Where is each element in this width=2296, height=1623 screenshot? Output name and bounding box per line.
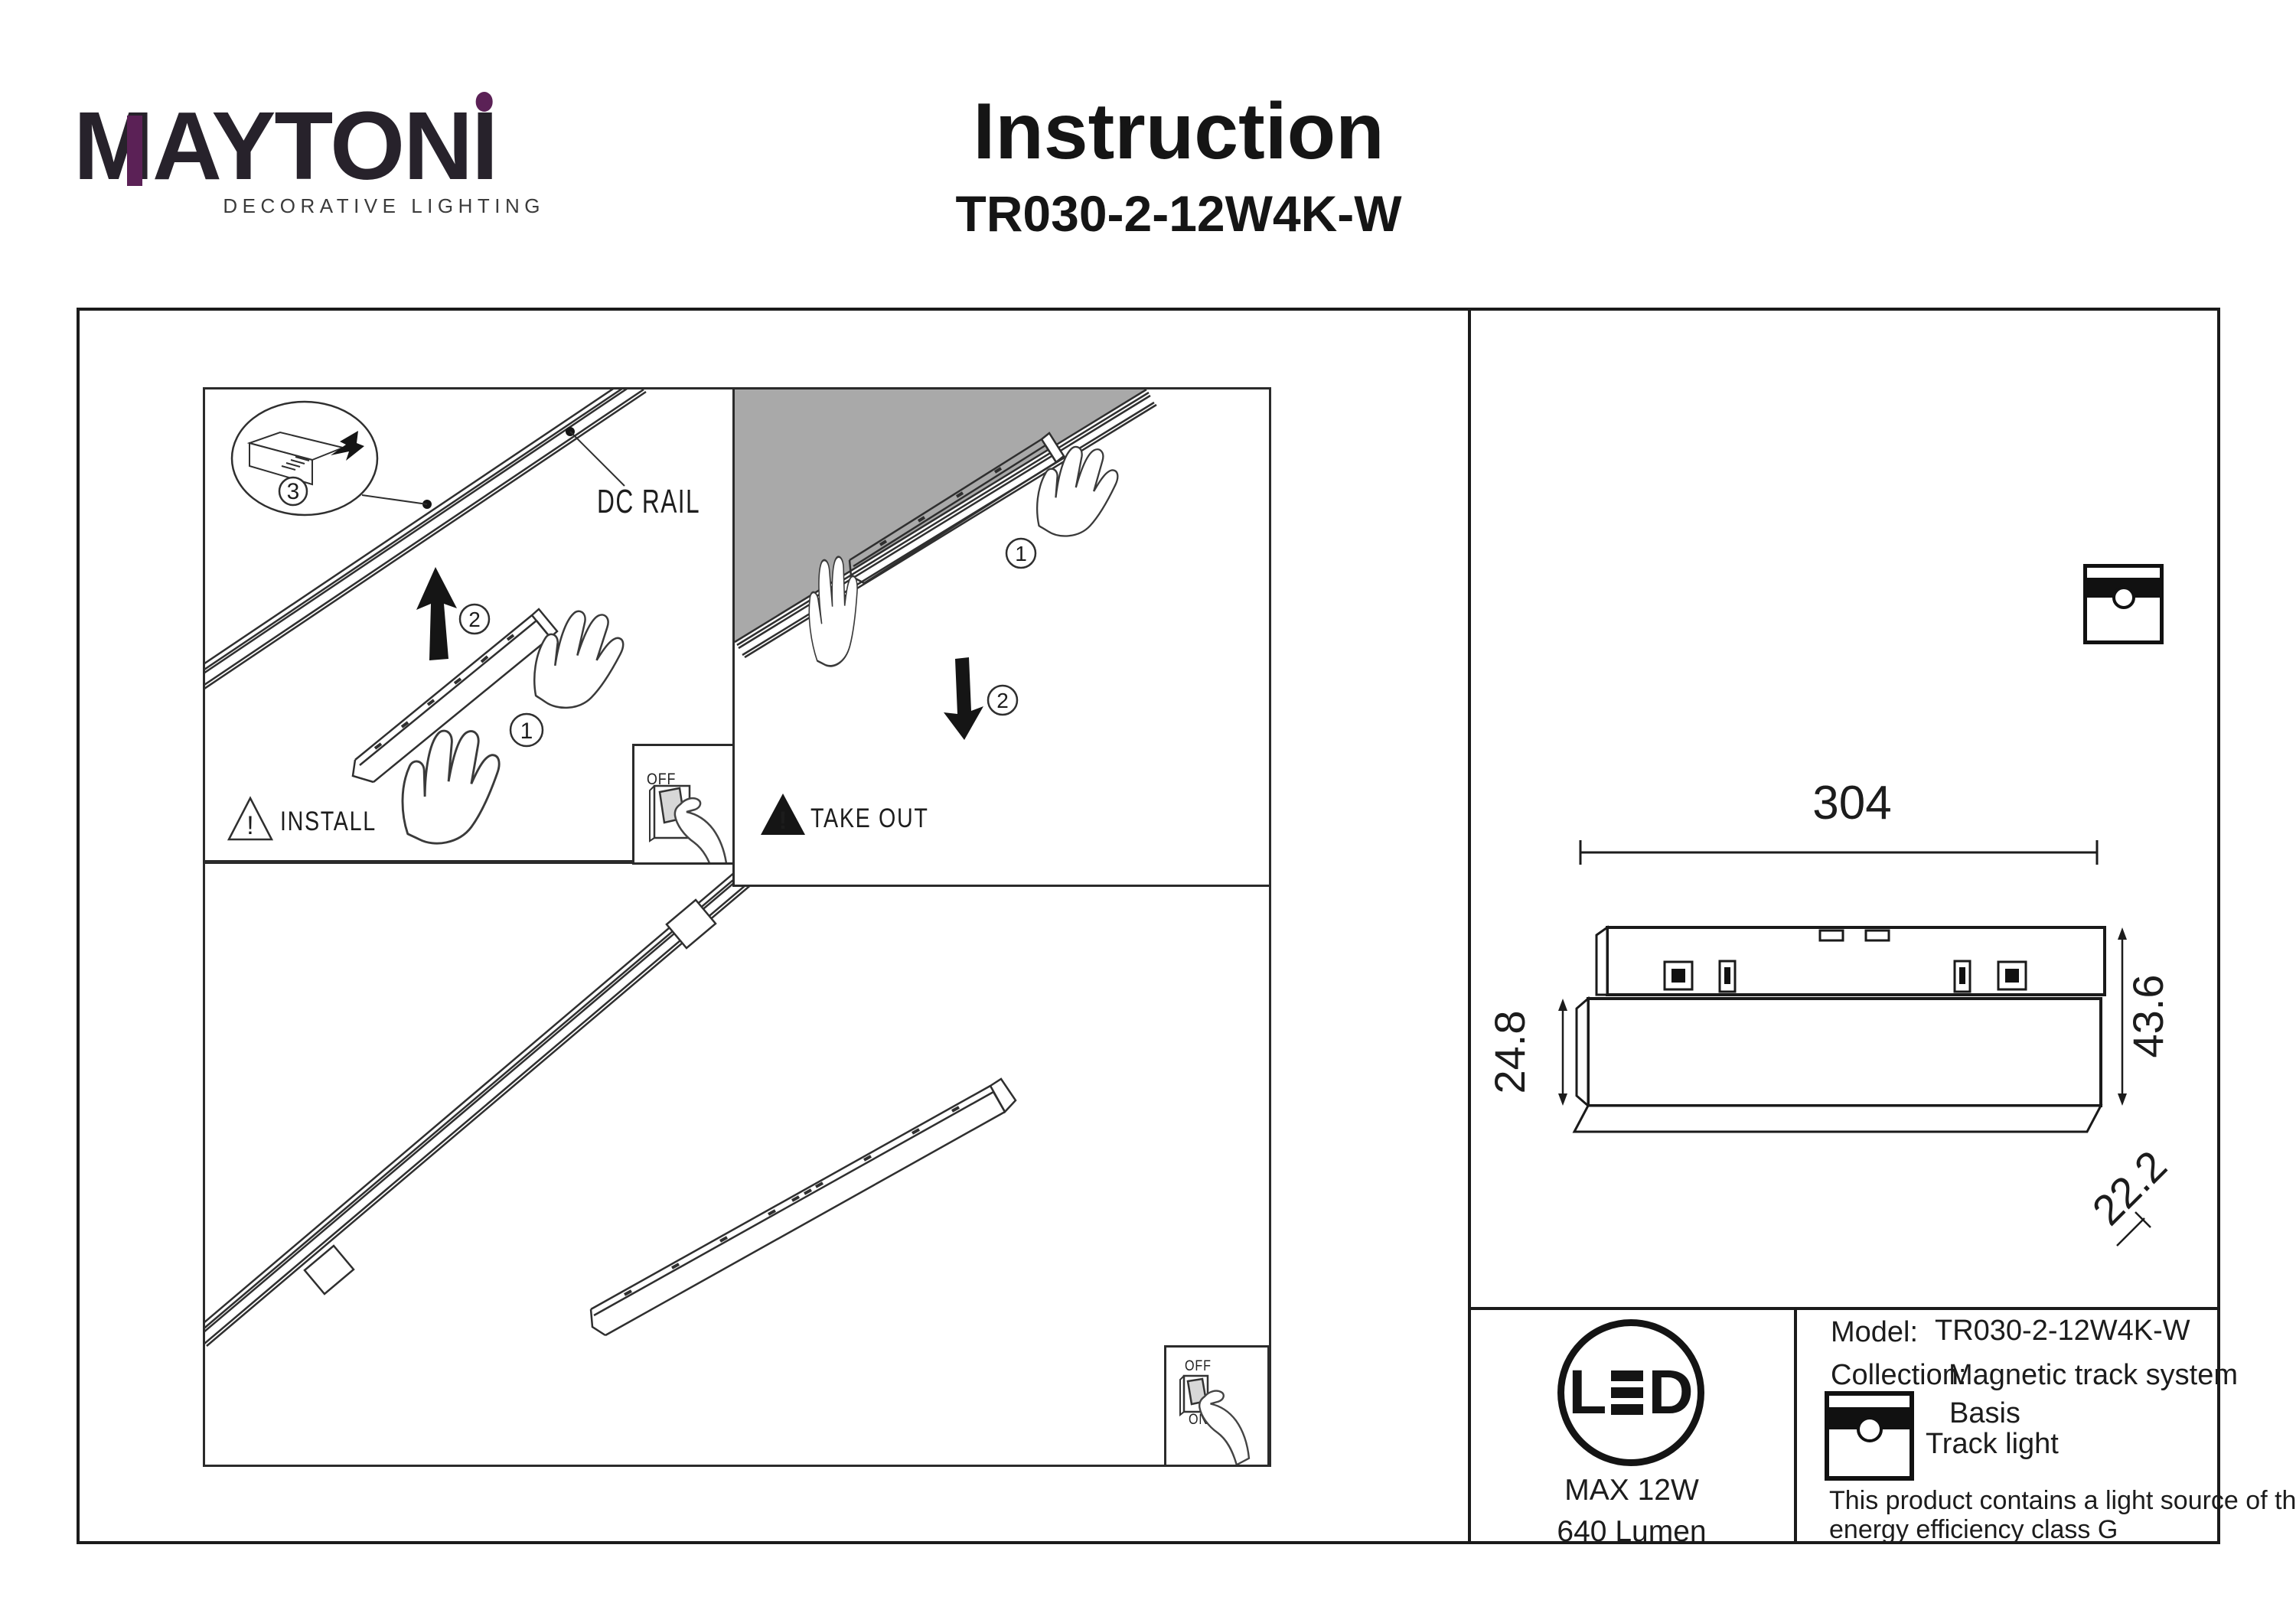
step-3-number: 3: [287, 479, 300, 504]
detail-leader-line: [362, 495, 427, 504]
dc-rail-label: DC RAIL: [597, 483, 700, 521]
logo-accent-bar: [127, 116, 143, 186]
takeout-panel: 1 2 ! TAKE OUT: [732, 387, 1271, 887]
step-2-number: 2: [468, 608, 481, 631]
depth-value: 22.2: [2082, 1141, 2176, 1234]
left-hand-icon: [398, 725, 502, 849]
table-top-border: [1468, 1307, 2220, 1310]
dimension-drawing: 304: [1485, 735, 2219, 1270]
rail-end-cap: [667, 900, 716, 948]
energy-note-line1: This product contains a light source of …: [1829, 1486, 2296, 1516]
switch-drawing: [1166, 1348, 1267, 1465]
maytoni-logo: MAYTONI: [73, 98, 497, 194]
power-switch-box-install: OFF ON: [632, 744, 737, 865]
step-1-number: 1: [520, 719, 533, 744]
basis-label: Basis: [1949, 1397, 2020, 1430]
install-caption: INSTALL: [280, 807, 377, 837]
led-letter-d: D: [1648, 1361, 1693, 1424]
detail-bubble: 3: [232, 402, 377, 515]
warning-exclamation: !: [246, 811, 253, 840]
track-light-label: Track light: [1926, 1428, 2059, 1461]
body-height-dimension: [1558, 999, 1567, 1106]
logo-letter-i: I: [471, 98, 497, 194]
table-column-divider: [1794, 1307, 1797, 1544]
icon-knob: [2112, 586, 2135, 609]
pressing-hand-icon: [1199, 1391, 1249, 1465]
track-light-profile-icon: [2083, 564, 2164, 644]
model-number-title: TR030-2-12W4K-W: [872, 184, 1485, 243]
takeout-caption: TAKE OUT: [810, 803, 929, 834]
max-power: MAX 12W: [1471, 1474, 1792, 1507]
title-block: Instruction TR030-2-12W4K-W: [872, 90, 1485, 243]
logo-letter-m: M: [73, 98, 152, 194]
length-dimension-line: [1580, 840, 2097, 865]
total-height-value: 43.6: [2124, 975, 2172, 1058]
right-hand-icon: [1031, 439, 1123, 545]
logo-letters-mid: AYTON: [152, 92, 471, 200]
arrow-up-icon: [416, 567, 457, 660]
power-switch-box-overview: OFF ON: [1164, 1345, 1270, 1467]
arrow-down-icon: [944, 657, 983, 740]
collection-value: Magnetic track system: [1949, 1359, 2238, 1392]
logo-accent-dot: [475, 92, 493, 112]
led-badge: L D: [1557, 1319, 1704, 1466]
icon-knob: [1857, 1416, 1883, 1442]
step-1-number: 1: [1015, 542, 1027, 565]
collection-label: Collection:: [1831, 1359, 1966, 1392]
model-value: TR030-2-12W4K-W: [1935, 1315, 2190, 1348]
model-label: Model:: [1831, 1316, 1918, 1349]
switch-drawing: [634, 746, 735, 862]
led-letter-l: L: [1568, 1361, 1606, 1424]
luminous-flux: 640 Lumen: [1471, 1515, 1792, 1549]
overview-panel: OFF ON: [203, 862, 1271, 1467]
body-height-value: 24.8: [1486, 1011, 1534, 1094]
led-letter-e: [1611, 1370, 1643, 1415]
frame-vertical-divider: [1468, 308, 1471, 1544]
pressing-hand-icon: [675, 798, 727, 862]
basis-track-icon: [1825, 1391, 1914, 1481]
track-light-drawing: [591, 1079, 1016, 1335]
dc-rail-drawing: [205, 864, 763, 1346]
overview-drawing: [205, 864, 1269, 1465]
magnet-slots: [625, 1107, 959, 1295]
step-2-number: 2: [996, 689, 1009, 712]
page-title: Instruction: [872, 90, 1485, 174]
warning-exclamation: !: [779, 807, 788, 834]
instruction-sheet: MAYTONI DECORATIVE LIGHTING Instruction …: [0, 0, 2296, 1623]
install-panel: 3 2: [203, 387, 735, 862]
fixture-body: [1574, 999, 2101, 1132]
length-dimension-value: 304: [1812, 777, 1891, 829]
brand-tagline: DECORATIVE LIGHTING: [73, 194, 545, 218]
dc-rail-leader-line: [570, 432, 625, 486]
energy-note-line2: energy efficiency class G: [1829, 1515, 2118, 1545]
